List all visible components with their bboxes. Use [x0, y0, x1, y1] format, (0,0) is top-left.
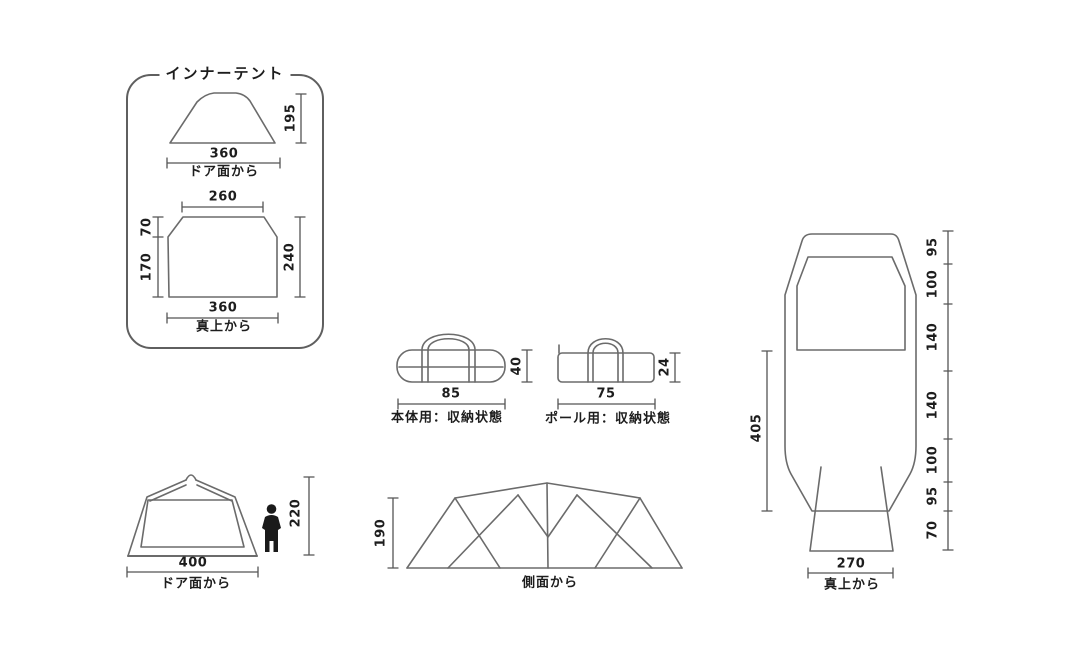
- dim-inner-front-width: 360: [210, 148, 239, 161]
- dim-pole-bag-width: 75: [596, 388, 615, 401]
- person-silhouette: [262, 504, 281, 552]
- dim-overhead-seg-1: 100: [927, 270, 940, 299]
- tent-spec-diagram: インナーテント 195 360 ドア面から 260 70 170 240 360…: [0, 0, 1080, 645]
- dim-pole-bag-height: 24: [659, 357, 672, 376]
- dim-overhead-seg-3: 140: [927, 391, 940, 420]
- diagram-line-art: [0, 0, 1080, 645]
- caption-inner-front-view: ドア面から: [189, 166, 259, 179]
- inner-tent-panel-title: インナーテント: [159, 67, 290, 82]
- dim-body-bag-width: 85: [441, 388, 460, 401]
- side-view-frame: [407, 483, 682, 568]
- dim-overhead-length: 405: [751, 414, 764, 443]
- dim-door-view-width: 400: [179, 557, 208, 570]
- dim-overhead-seg-0: 95: [927, 237, 940, 256]
- dim-inner-top-width: 260: [209, 191, 238, 204]
- dim-overhead-seg-5: 95: [927, 486, 940, 505]
- overhead-view-outline: [785, 234, 916, 551]
- dim-overhead-seg-2: 140: [927, 323, 940, 352]
- caption-body-bag: 本体用：収納状態: [391, 412, 503, 425]
- dim-overhead-seg-4: 100: [927, 446, 940, 475]
- body-bag-outline: [397, 334, 505, 382]
- door-view-dimensions: [127, 477, 314, 577]
- dim-inner-top-depth: 240: [284, 243, 297, 272]
- dim-inner-top-bottom-width: 360: [209, 302, 238, 315]
- pole-bag-outline: [558, 339, 654, 382]
- caption-pole-bag: ポール用：収納状態: [545, 413, 671, 426]
- dim-door-view-height: 220: [290, 499, 303, 528]
- door-view-outline: [128, 475, 257, 556]
- overhead-view-dimensions: [762, 231, 953, 578]
- caption-door-view: ドア面から: [161, 578, 231, 591]
- dim-body-bag-height: 40: [511, 356, 524, 375]
- inner-tent-top-outline: [168, 217, 277, 297]
- inner-tent-front-outline: [170, 93, 275, 143]
- caption-overhead-view: 真上から: [824, 579, 880, 592]
- dim-overhead-seg-6: 70: [927, 520, 940, 539]
- caption-inner-top-view: 真上から: [196, 321, 252, 334]
- dim-side-view-height: 190: [375, 519, 388, 548]
- caption-side-view: 側面から: [522, 577, 578, 590]
- dim-overhead-width: 270: [837, 558, 866, 571]
- dim-inner-front-height: 195: [285, 104, 298, 133]
- dim-inner-top-side: 170: [141, 253, 154, 282]
- dim-inner-top-corner: 70: [141, 217, 154, 236]
- side-view-dimensions: [388, 498, 398, 568]
